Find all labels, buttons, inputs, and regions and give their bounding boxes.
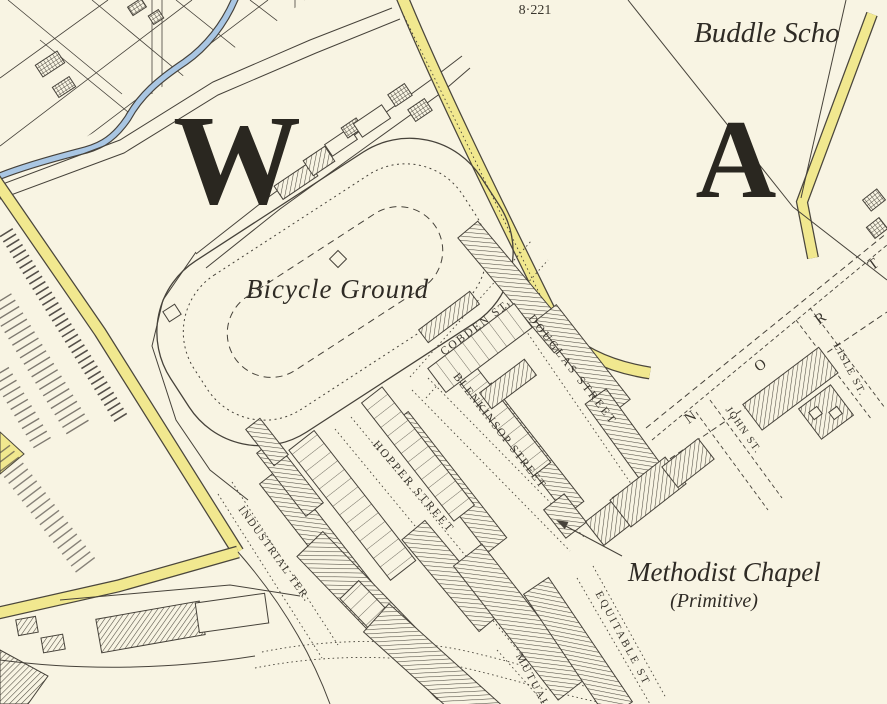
buddle-school-label: Buddle Scho <box>694 17 840 49</box>
district-letter-a: A <box>696 98 777 222</box>
methodist-chapel-qualifier: (Primitive) <box>670 590 758 612</box>
bicycle-ground-label: Bicycle Ground <box>246 274 429 304</box>
district-letter-w: W <box>173 89 301 231</box>
parcel-number: 8·221 <box>519 3 552 18</box>
methodist-chapel-label: Methodist Chapel <box>627 557 821 587</box>
ordnance-survey-map: COBDEN ST. DOUGLAS STREET BLENKINSOP STR… <box>0 0 887 704</box>
building <box>41 634 65 653</box>
building <box>16 616 38 635</box>
map-canvas[interactable]: COBDEN ST. DOUGLAS STREET BLENKINSOP STR… <box>0 0 887 704</box>
